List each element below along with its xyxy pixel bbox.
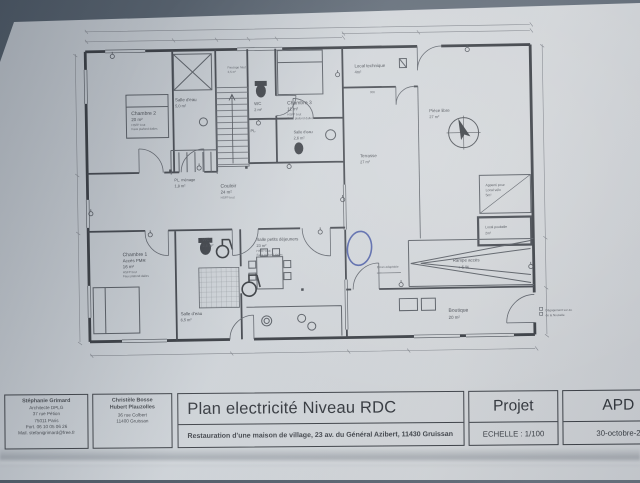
svg-text:Faux plafond dalles: Faux plafond dalles (287, 116, 314, 120)
svg-text:5,0 m²: 5,0 m² (175, 103, 187, 108)
room-label-chambre-3: Chambre 3 11 m² HSFP brut Faux plafond d… (287, 100, 314, 120)
door-arcs (137, 44, 535, 340)
svg-text:20 m²: 20 m² (131, 117, 143, 122)
room-label-salle-eau-et1: Salle d'eau 6,5 m² (181, 311, 203, 322)
svg-text:Boutique: Boutique (448, 308, 468, 314)
title-box: Plan electricité Niveau RDC Restauration… (177, 391, 464, 448)
svg-text:Faux plafond dalles: Faux plafond dalles (123, 274, 150, 278)
exterior-walls (85, 44, 535, 341)
svg-text:20 m²: 20 m² (449, 315, 461, 320)
svg-text:+ 5 %: + 5 % (458, 265, 470, 270)
interior-walls (85, 44, 535, 341)
svg-text:Pièce libre: Pièce libre (429, 108, 450, 113)
svg-text:2,6 m²: 2,6 m² (202, 243, 214, 248)
architect-block-2: Christèle Bosse Hubert Plauzolles 36 rue… (92, 393, 172, 449)
svg-text:2,5 m²: 2,5 m² (228, 70, 237, 74)
svg-text:HSFP brut: HSFP brut (221, 195, 235, 199)
svg-text:Local vélo: Local vélo (486, 188, 501, 192)
svg-text:27 m²: 27 m² (360, 159, 371, 164)
room-label-salle-eau-et3: Salle d'eau 2,6 m² (294, 129, 313, 140)
room-label-chambre-2: Chambre 2 20 m² HSFP brut Faux plafond d… (131, 111, 158, 131)
north-compass-icon (446, 115, 481, 150)
apd-box: APD 30-octobre-2 (562, 389, 640, 445)
svg-text:Accès PMR: Accès PMR (123, 258, 146, 263)
svg-text:Passage haut: Passage haut (227, 65, 246, 69)
room-label-boutique: Boutique 20 m² (448, 308, 468, 320)
svg-text:Dégagement sur av.: Dégagement sur av. (546, 308, 573, 312)
room-label-rampe: Rampe accès + 5 % (453, 257, 481, 269)
drawing-title: Plan electricité Niveau RDC (178, 392, 463, 425)
svg-text:Salle petits déjeuners: Salle petits déjeuners (256, 236, 299, 242)
svg-text:Local technique: Local technique (354, 63, 385, 69)
drawing-subtitle: Restauration d'une maison de village, 23… (178, 423, 463, 447)
svg-text:1,8 m²: 1,8 m² (174, 183, 186, 188)
svg-text:Salle d'eau: Salle d'eau (181, 311, 203, 316)
architect-block-1: Stéphanie Grimard Architecte DPLG 37 rue… (4, 394, 88, 450)
room-label-local-technique: Local technique 4m² (354, 63, 385, 75)
drawing-sheet: 300 (0, 0, 640, 483)
dimension-lines (73, 22, 549, 358)
phase-box: Projet ECHELLE : 1/100 (468, 390, 558, 446)
svg-text:Salle d'eau: Salle d'eau (294, 129, 313, 134)
staircase (216, 87, 249, 167)
label-degagement: Dégagement sur av. de la Nouvelle (546, 308, 573, 317)
room-label-wc-haut: WC 2 m² (254, 101, 263, 112)
svg-text:2m²: 2m² (485, 231, 492, 235)
windows (84, 43, 514, 343)
svg-text:5m²: 5m² (486, 193, 493, 197)
svg-text:Terrasse: Terrasse (360, 153, 377, 158)
date-label: 30-octobre-2 (563, 421, 640, 444)
room-label-salle-eau-et2: Salle d'eau 5,0 m² (175, 97, 197, 108)
label-ecran: Ecran adaptable (377, 265, 399, 269)
room-label-passage-haut: Passage haut 2,5 m² (227, 65, 246, 74)
svg-text:16 m²: 16 m² (123, 264, 135, 269)
svg-text:Salle d'eau: Salle d'eau (175, 97, 197, 102)
svg-text:27 m²: 27 m² (429, 114, 440, 119)
pmr-shower-hatch (199, 267, 240, 308)
svg-text:Rampe accès: Rampe accès (453, 257, 481, 262)
room-label-piece: Pièce libre 27 m² (429, 108, 450, 119)
room-label-local-poubelle: Local poubelle 2m² (485, 225, 507, 235)
scale-label: ECHELLE : 1/100 (469, 422, 557, 445)
svg-text:2,6 m²: 2,6 m² (294, 135, 306, 140)
svg-text:23 m²: 23 m² (256, 243, 267, 248)
pen-annotation (345, 230, 373, 267)
svg-text:de la Nouvelle: de la Nouvelle (546, 313, 565, 317)
svg-text:4m²: 4m² (355, 69, 362, 74)
svg-text:Appenti pour: Appenti pour (485, 183, 505, 187)
svg-text:Faux plafond dalles: Faux plafond dalles (257, 253, 284, 257)
room-label-petits-dejeuners: Salle petits déjeuners 23 m² HSFP brut F… (256, 236, 299, 257)
svg-text:Faux plafond dalles: Faux plafond dalles (131, 127, 158, 131)
svg-text:6,5 m²: 6,5 m² (181, 317, 193, 322)
room-label-pl-menage: PL. ménage 1,8 m² (174, 177, 195, 188)
svg-text:WC: WC (202, 237, 209, 242)
furniture-and-fixtures (89, 46, 543, 339)
room-label-terrasse: Terrasse 27 m² (360, 153, 378, 164)
svg-text:PL. ménage: PL. ménage (174, 177, 195, 182)
svg-text:24 m²: 24 m² (221, 189, 233, 194)
svg-text:2 m²: 2 m² (254, 107, 263, 112)
room-label-wc-bas: WC 2,6 m² (202, 237, 214, 248)
dimension-label: 300 (370, 90, 375, 94)
svg-text:11 m²: 11 m² (287, 106, 299, 111)
svg-text:WC: WC (254, 101, 261, 106)
room-label-local-velo: Appenti pour Local vélo 5m² (485, 183, 505, 197)
room-label-chambre-1: Chambre 1 Accès PMR 16 m² HSFP brut Faux… (123, 252, 150, 278)
room-label-couloir: Couloir 24 m² HSFP brut (220, 183, 236, 199)
phase-label: Projet (469, 391, 557, 423)
photographed-floorplan-page: { "title_block": { "architect1": {"lines… (0, 0, 640, 480)
phase-value: APD (563, 390, 640, 422)
room-label-pl: PL. (250, 128, 256, 133)
svg-text:Local poubelle: Local poubelle (485, 225, 507, 229)
